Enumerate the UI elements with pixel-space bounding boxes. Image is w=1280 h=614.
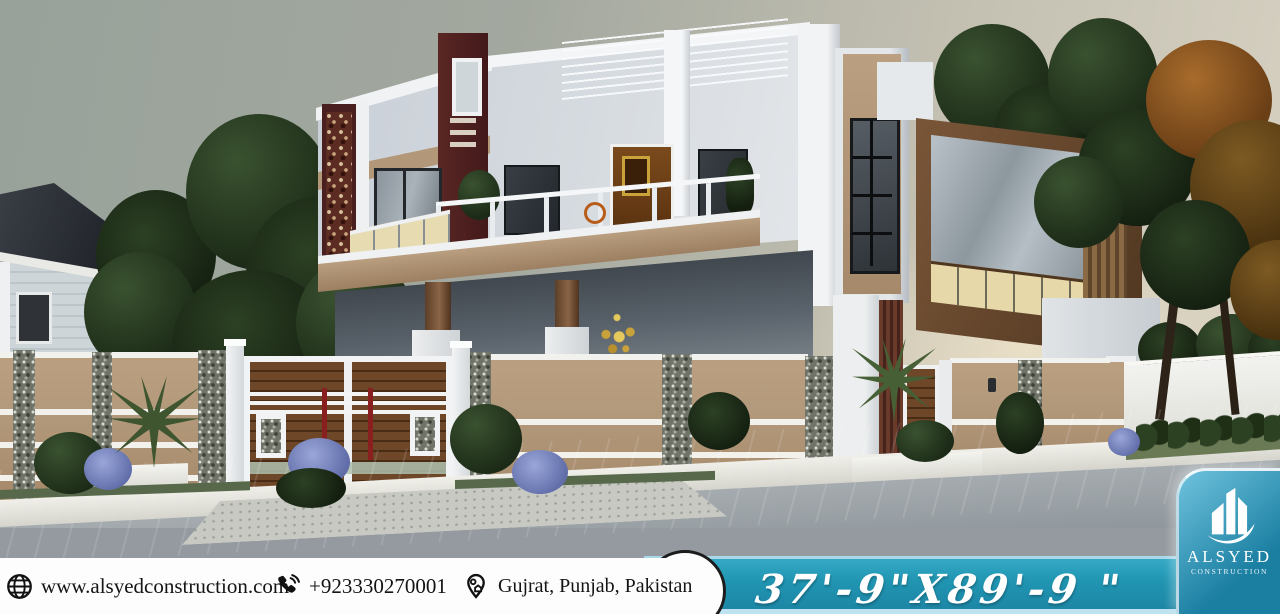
chandelier [595,308,639,356]
tower-window-mullion [852,232,892,235]
perforated-screen [326,112,352,266]
shrub [996,392,1044,454]
shrub [276,468,346,508]
round-column-wood [555,280,579,330]
rendering-canvas: www.alsyedconstruction.com +923330270001… [0,0,1280,614]
wall-coping [690,354,808,360]
tower-window-mullion [870,120,873,266]
location-label: Gujrat, Punjab, Pakistan [498,575,692,598]
shrub [450,404,522,474]
panel-window-cutout [452,58,482,116]
website-contact: www.alsyedconstruction.com [6,558,289,614]
shrub [896,420,954,462]
contact-bar: www.alsyedconstruction.com +923330270001… [0,558,688,614]
location-pin-icon [462,572,490,600]
gate-pebble-panel [256,414,286,458]
neighbor-house-window [16,292,52,344]
flower-clump-purple [1108,428,1140,456]
tower-window-mullion [852,156,892,159]
plot-dimensions-text: 37'-9"X89'-9 " [753,566,1127,613]
shrub [688,392,750,450]
plot-dimensions: 37'-9"X89'-9 " [740,564,1140,614]
phone-contact: +923330270001 [274,558,447,614]
logo-subtitle: CONSTRUCTION [1191,567,1268,576]
panel-slit [450,142,476,147]
panel-slit [450,130,476,135]
phone-label: +923330270001 [309,574,447,599]
gate-stripe [250,392,446,396]
right-house-white-nub [877,62,933,120]
logo-name: ALSYED [1187,547,1272,567]
railing-decor-ring [584,202,606,224]
tower-window-mullion [852,194,892,197]
panel-slit [450,118,476,123]
gate-post-cap [224,339,246,346]
tree-canopy [1034,156,1124,248]
wall-coping [490,354,665,360]
column-pedestal [545,327,589,357]
buildings-swoosh-icon [1198,481,1262,545]
gate-stripe [250,401,446,405]
flower-clump-purple [84,448,132,490]
gate-handle-bar [368,388,373,460]
phone-icon [274,573,301,600]
globe-icon [6,573,33,600]
location-contact: Gujrat, Punjab, Pakistan [462,558,692,614]
website-label: www.alsyedconstruction.com [41,574,289,599]
wall-lamp [988,378,996,392]
gate-post-cap [450,341,472,348]
company-logo: ALSYED CONSTRUCTION [1176,468,1280,614]
flower-clump-purple [512,450,568,494]
